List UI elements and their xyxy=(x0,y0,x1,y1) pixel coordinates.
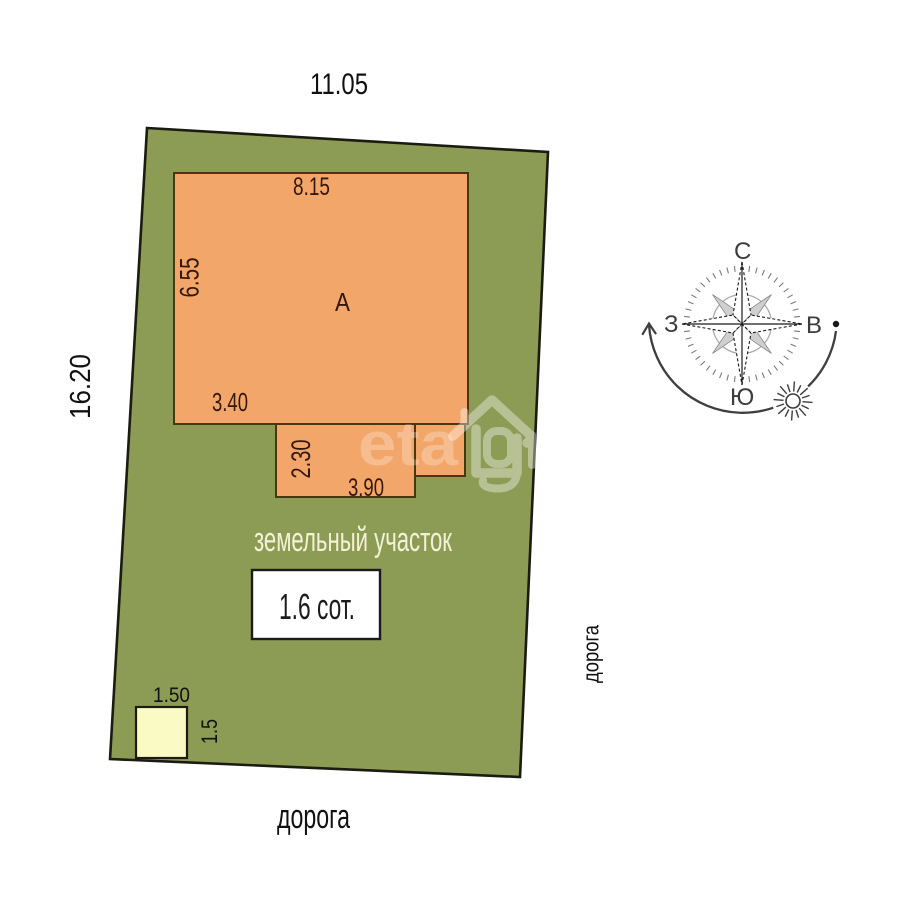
svg-text:3.40: 3.40 xyxy=(212,387,248,417)
svg-text:дорога: дорога xyxy=(579,624,604,683)
svg-text:eta: eta xyxy=(358,410,459,479)
svg-text:1.6 сот.: 1.6 сот. xyxy=(279,586,355,627)
svg-text:1.50: 1.50 xyxy=(153,684,190,707)
svg-text:Ю: Ю xyxy=(730,384,754,411)
svg-text:С: С xyxy=(734,238,751,265)
svg-text:2.30: 2.30 xyxy=(286,440,316,479)
svg-text:дорога: дорога xyxy=(277,798,350,836)
svg-text:16.20: 16.20 xyxy=(65,354,97,419)
svg-text:земельный участок: земельный участок xyxy=(254,521,453,559)
svg-text:1.5: 1.5 xyxy=(197,719,222,744)
svg-text:А: А xyxy=(335,287,351,317)
svg-text:6.55: 6.55 xyxy=(175,258,205,298)
svg-text:З: З xyxy=(664,311,679,338)
svg-text:8.15: 8.15 xyxy=(293,173,330,201)
svg-text:11.05: 11.05 xyxy=(310,68,368,101)
svg-text:В: В xyxy=(806,312,822,339)
